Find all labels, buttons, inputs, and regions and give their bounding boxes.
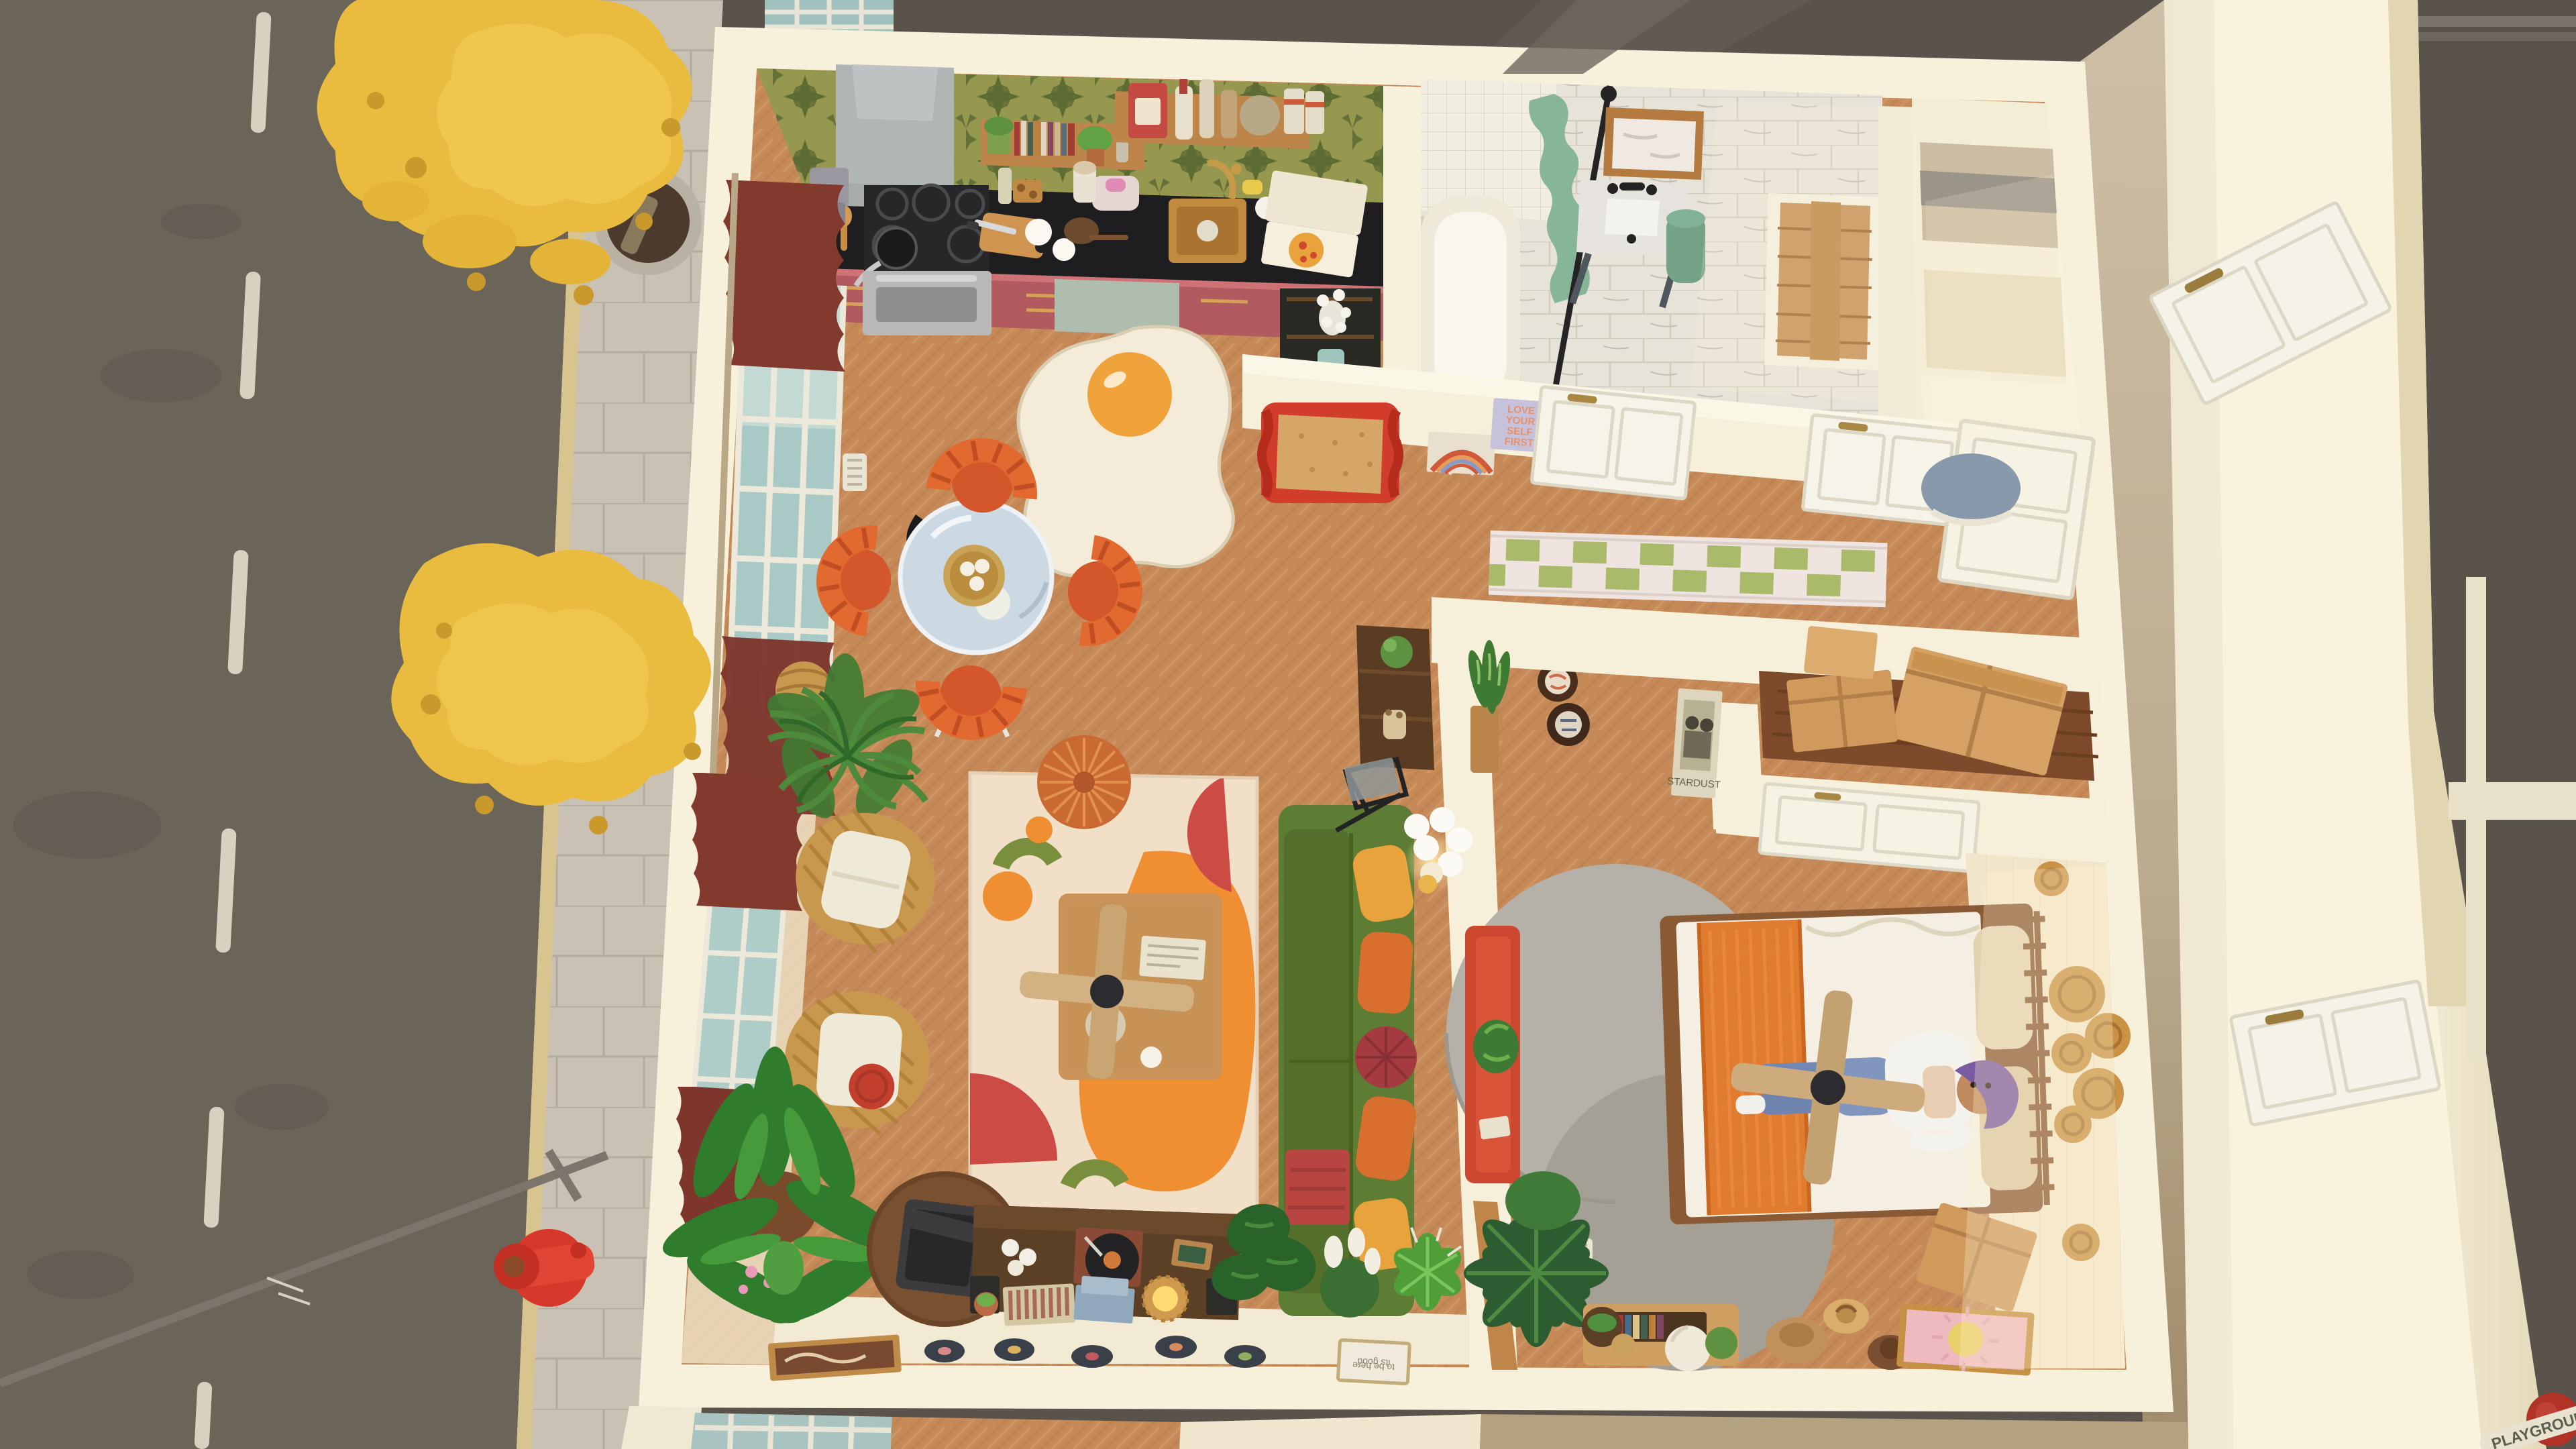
svg-text:FIRST: FIRST: [1504, 435, 1534, 449]
svg-text:to be here: to be here: [1352, 1360, 1395, 1373]
